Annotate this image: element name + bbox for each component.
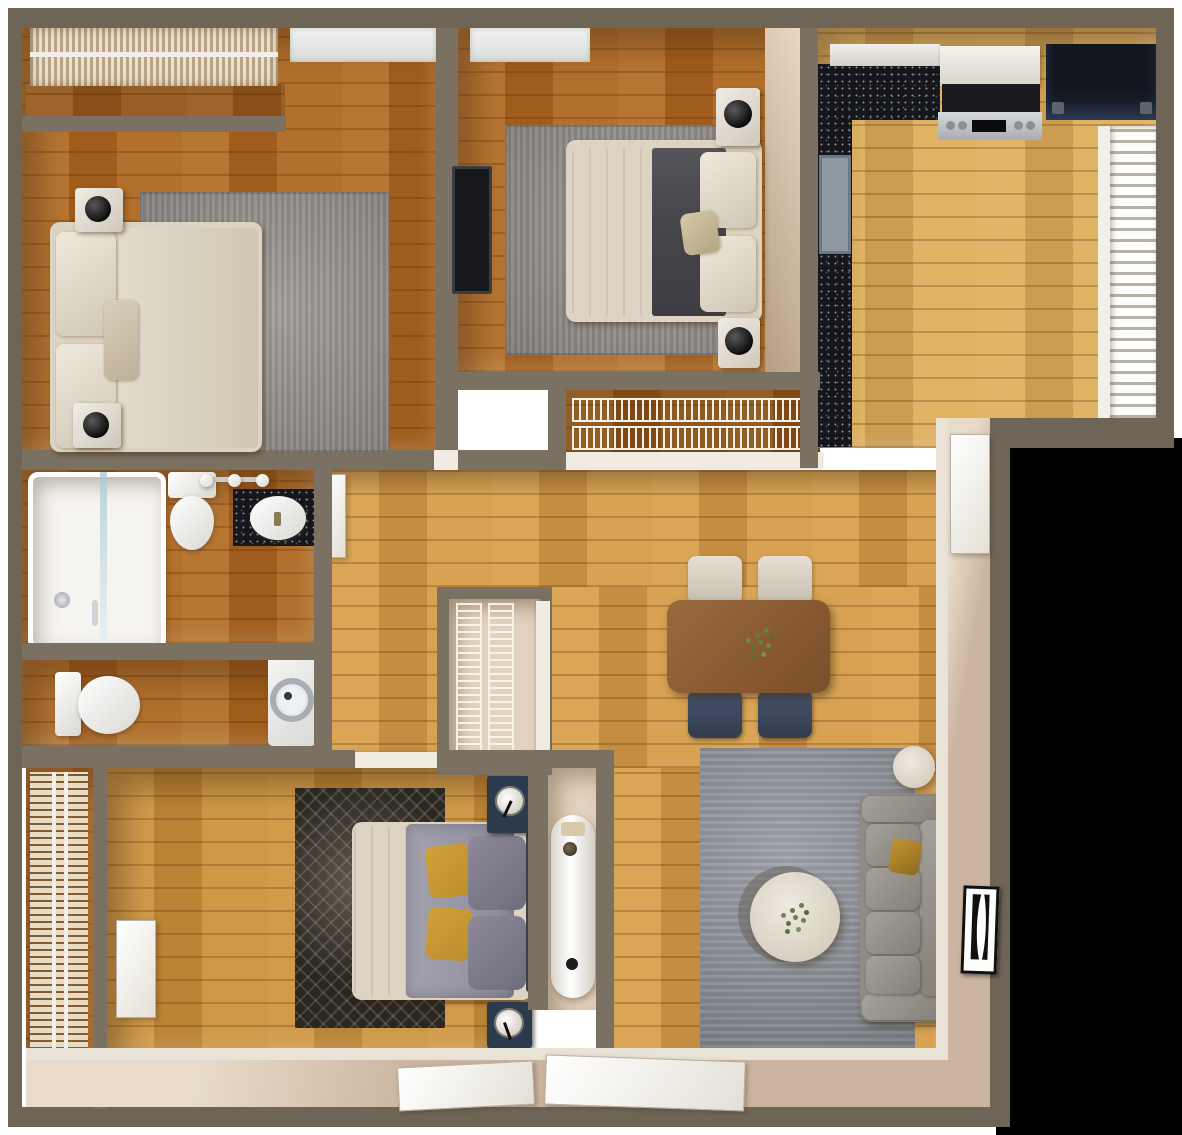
- sink-faucet: [274, 512, 281, 526]
- side-table: [893, 746, 935, 788]
- wall-tv: [452, 166, 492, 294]
- stove-front: [938, 112, 1042, 140]
- hourglass-wall-art: [960, 885, 999, 974]
- toilet-2-bowl: [78, 676, 140, 734]
- bed-3-pillow-mustard: [424, 843, 473, 899]
- wall-bedroom3-top: [107, 750, 355, 768]
- stove-knob: [1026, 121, 1035, 130]
- exterior-backdrop: [996, 438, 1182, 1135]
- bed-2-sheet: [572, 148, 660, 316]
- sconce-light: [256, 474, 269, 487]
- wire-shelf-vertical: [456, 603, 482, 759]
- refrigerator: [1046, 44, 1158, 120]
- wall-bathroom-right: [314, 470, 332, 768]
- front-door: [950, 434, 990, 554]
- wire-shelf: [572, 398, 814, 422]
- wire-shelf: [572, 426, 814, 450]
- outer-wall-right-kitchen: [1156, 8, 1174, 448]
- bedroom-1-bay-floor: [26, 84, 285, 118]
- bedroom-1-window-blinds: [30, 28, 278, 86]
- stove-knob: [958, 121, 967, 130]
- closet-door-track: [560, 452, 822, 468]
- sofa-cushion: [866, 956, 920, 994]
- shower-glass: [100, 472, 107, 640]
- stove-knob: [1014, 121, 1023, 130]
- wall-bedroom3-niche: [528, 768, 548, 1010]
- wall-kitchen-bottom: [996, 418, 1174, 448]
- bedroom-3-door-threshold: [355, 752, 437, 768]
- heater-drain: [566, 958, 578, 970]
- wall-bedroom2-bottom: [436, 372, 820, 390]
- heater-fitting: [561, 822, 585, 836]
- living-right-baseboard: [936, 418, 948, 1058]
- bedroom-2-window: [470, 28, 590, 62]
- cabinet-front-panel: [819, 155, 851, 254]
- sofa-armrest: [862, 796, 944, 822]
- bedroom-1-door-threshold: [434, 450, 460, 470]
- wall-bathroom-wc: [22, 643, 314, 660]
- outer-wall-bottom: [8, 1107, 1008, 1127]
- bed-1-blanket: [118, 228, 258, 448]
- sofa-armrest: [862, 994, 944, 1020]
- outer-wall-top: [8, 8, 1174, 28]
- hourglass-glyph: [967, 889, 994, 966]
- dining-table: [667, 600, 830, 693]
- table-plant: [758, 640, 763, 645]
- bed-3-pillow-gray: [468, 836, 526, 910]
- stove-cooktop: [942, 84, 1040, 114]
- table-lamp-black: [85, 196, 111, 222]
- sconce-light: [200, 474, 213, 487]
- stove-display: [972, 120, 1006, 132]
- washer-knob: [284, 692, 292, 700]
- bottom-baseboard: [26, 1048, 948, 1060]
- kitchen-window-louvers: [1110, 126, 1156, 426]
- open-door-panel: [544, 1055, 746, 1112]
- dining-chair-navy: [758, 690, 812, 738]
- shower-valve: [54, 592, 70, 608]
- corridor-floor: [332, 587, 437, 768]
- linen-closet-door-edge: [536, 601, 550, 763]
- kitchen-counter-top: [818, 64, 940, 120]
- wall-bedroom1-bottom: [22, 450, 434, 470]
- table-lamp-black: [83, 412, 109, 438]
- table-lamp-dark: [724, 100, 752, 128]
- floor-plan-render: [0, 0, 1182, 1135]
- washer-door: [270, 678, 314, 722]
- kitchen-counter-left: [818, 64, 852, 447]
- outer-wall-right-lower: [988, 418, 1010, 1127]
- fridge-hinge: [1052, 102, 1064, 114]
- dining-chair-cream: [758, 556, 812, 604]
- bed-3-pillow-mustard: [425, 906, 473, 962]
- table-lamp-dark: [725, 327, 753, 355]
- bed-2-accent-pillow: [679, 210, 720, 257]
- dining-chair-cream: [688, 556, 742, 604]
- wall-bedroom1-bay: [22, 116, 286, 132]
- bed-3-pillow-gray: [468, 916, 526, 990]
- outer-wall-left: [8, 8, 22, 1127]
- wall-kitchen-left: [800, 28, 818, 468]
- open-door-panel: [397, 1060, 535, 1111]
- kitchen-upper-cabinet: [830, 44, 940, 66]
- stove-knob: [946, 121, 955, 130]
- wall-closet2-left: [548, 388, 566, 468]
- heater-valve: [563, 842, 577, 856]
- sconce-light: [228, 474, 241, 487]
- bedroom-1-window: [290, 28, 436, 62]
- hall-shadow: [332, 470, 938, 496]
- wall-niche-living: [596, 760, 614, 1050]
- bedroom-3-wall-door: [116, 920, 156, 1018]
- bed-1-accent-pillow: [104, 300, 138, 380]
- wire-shelf-vertical: [488, 603, 514, 759]
- sofa-throw-pillow: [888, 838, 923, 876]
- fridge-hinge: [1140, 102, 1152, 114]
- dining-chair-navy: [688, 690, 742, 738]
- range-hood: [940, 46, 1040, 86]
- sofa-cushion: [866, 912, 920, 954]
- hand-shower: [92, 600, 98, 626]
- kitchen-window-frame: [1098, 126, 1110, 426]
- blinds-rail: [30, 52, 278, 57]
- bedroom-2-right-wall-face: [765, 28, 800, 372]
- coffee-table-plant: [793, 915, 798, 920]
